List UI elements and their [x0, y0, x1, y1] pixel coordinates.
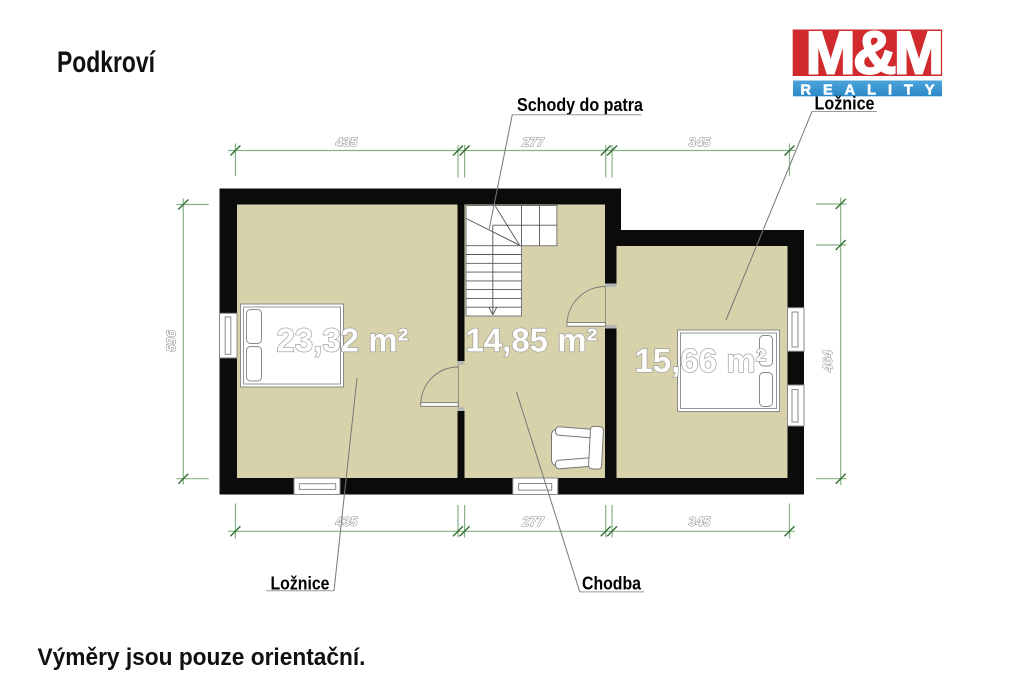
svg-text:277: 277 — [521, 135, 544, 150]
svg-text:23,32 m²: 23,32 m² — [276, 322, 408, 359]
svg-text:464: 464 — [820, 349, 835, 372]
svg-text:14,85 m²: 14,85 m² — [465, 322, 597, 359]
svg-text:M&M: M&M — [806, 20, 942, 87]
svg-text:345: 345 — [689, 514, 711, 529]
svg-text:Výměry jsou pouze orientační.: Výměry jsou pouze orientační. — [38, 644, 366, 671]
svg-text:435: 435 — [335, 135, 358, 150]
svg-text:277: 277 — [521, 514, 544, 529]
svg-text:Ložnice: Ložnice — [815, 93, 875, 114]
svg-text:Podkroví: Podkroví — [57, 46, 156, 79]
svg-text:15,66 m²: 15,66 m² — [634, 342, 766, 379]
svg-text:Chodba: Chodba — [582, 573, 642, 594]
svg-text:435: 435 — [335, 514, 358, 529]
svg-text:345: 345 — [689, 135, 711, 150]
svg-text:596: 596 — [164, 329, 179, 351]
svg-text:Schody do patra: Schody do patra — [517, 94, 644, 115]
